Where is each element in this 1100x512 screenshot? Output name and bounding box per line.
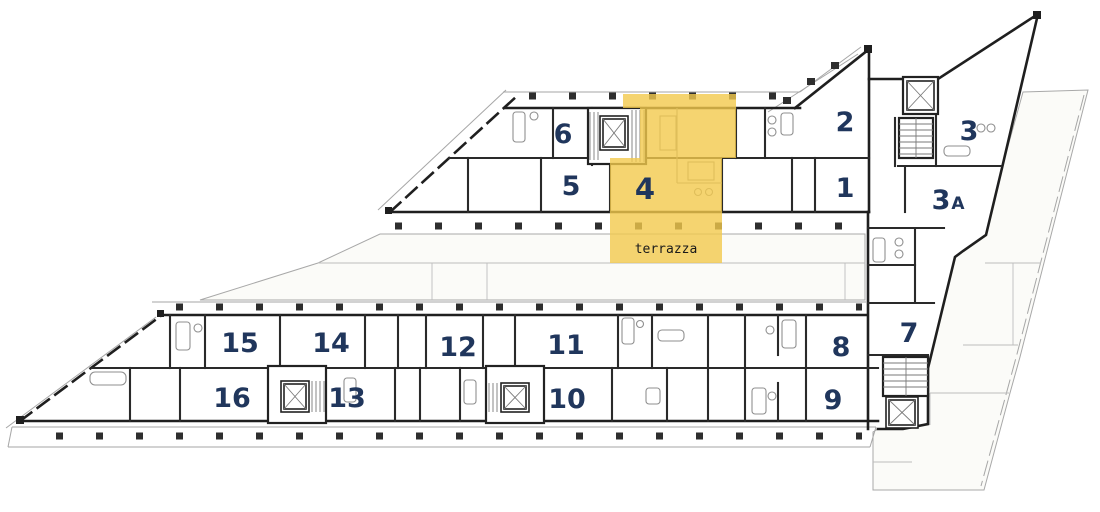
middle-terrace: [200, 234, 865, 300]
unit-label-6[interactable]: 6: [554, 119, 573, 150]
unit-label-12[interactable]: 12: [439, 332, 477, 363]
floor-plan-svg: 1 2 3 3 A 4 5 6 7 8 9 10 11 12 13 14 15 …: [0, 0, 1100, 512]
unit-label-4[interactable]: 4: [635, 172, 655, 206]
stairs-icon: [883, 357, 928, 396]
unit-label-9[interactable]: 9: [824, 385, 843, 416]
floor-plan-canvas: 1 2 3 3 A 4 5 6 7 8 9 10 11 12 13 14 15 …: [0, 0, 1100, 512]
unit-label-2[interactable]: 2: [836, 107, 855, 138]
unit-label-3a[interactable]: 3: [932, 185, 951, 216]
elevator-icon: [886, 397, 918, 428]
pillar: [831, 62, 839, 69]
pillar: [783, 97, 791, 104]
core-lower-middle: [486, 366, 544, 423]
unit-label-16[interactable]: 16: [213, 383, 251, 414]
unit-label-10[interactable]: 10: [548, 384, 586, 415]
pillar: [807, 78, 815, 85]
unit-label-1[interactable]: 1: [836, 173, 855, 204]
unit-label-13[interactable]: 13: [328, 383, 366, 414]
terrazza-label: terrazza: [635, 242, 698, 257]
core-upper-left: [588, 108, 646, 164]
unit-label-15[interactable]: 15: [221, 328, 259, 359]
elevator-icon: [600, 116, 628, 150]
elevator-icon: [903, 77, 938, 114]
unit-label-14[interactable]: 14: [312, 328, 350, 359]
unit-label-8[interactable]: 8: [832, 332, 851, 363]
elevator-icon: [281, 381, 309, 412]
unit-label-7[interactable]: 7: [900, 318, 919, 349]
unit-label-3a-suffix[interactable]: A: [951, 194, 965, 214]
unit-label-3[interactable]: 3: [960, 116, 979, 147]
core-right: [883, 357, 928, 428]
lower-block-partitions: [91, 315, 878, 421]
stairs-icon: [899, 118, 933, 158]
core-lower-left: [268, 366, 326, 423]
core-top-right: [899, 77, 938, 158]
unit-label-11[interactable]: 11: [547, 330, 585, 361]
unit-label-5[interactable]: 5: [562, 171, 581, 202]
elevator-icon: [501, 383, 529, 412]
